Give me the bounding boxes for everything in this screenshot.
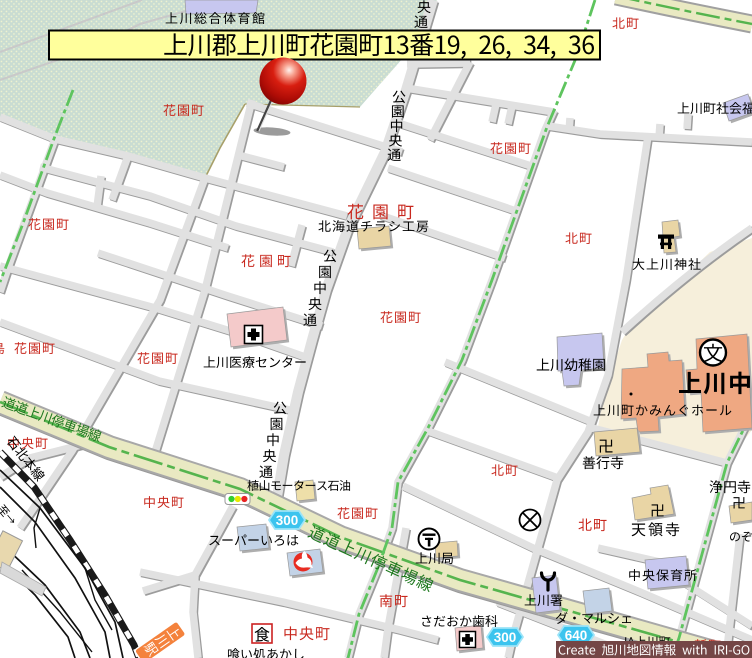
svg-text:300: 300 — [276, 513, 299, 528]
svg-text:300: 300 — [494, 630, 517, 645]
svg-text:640: 640 — [565, 628, 588, 643]
